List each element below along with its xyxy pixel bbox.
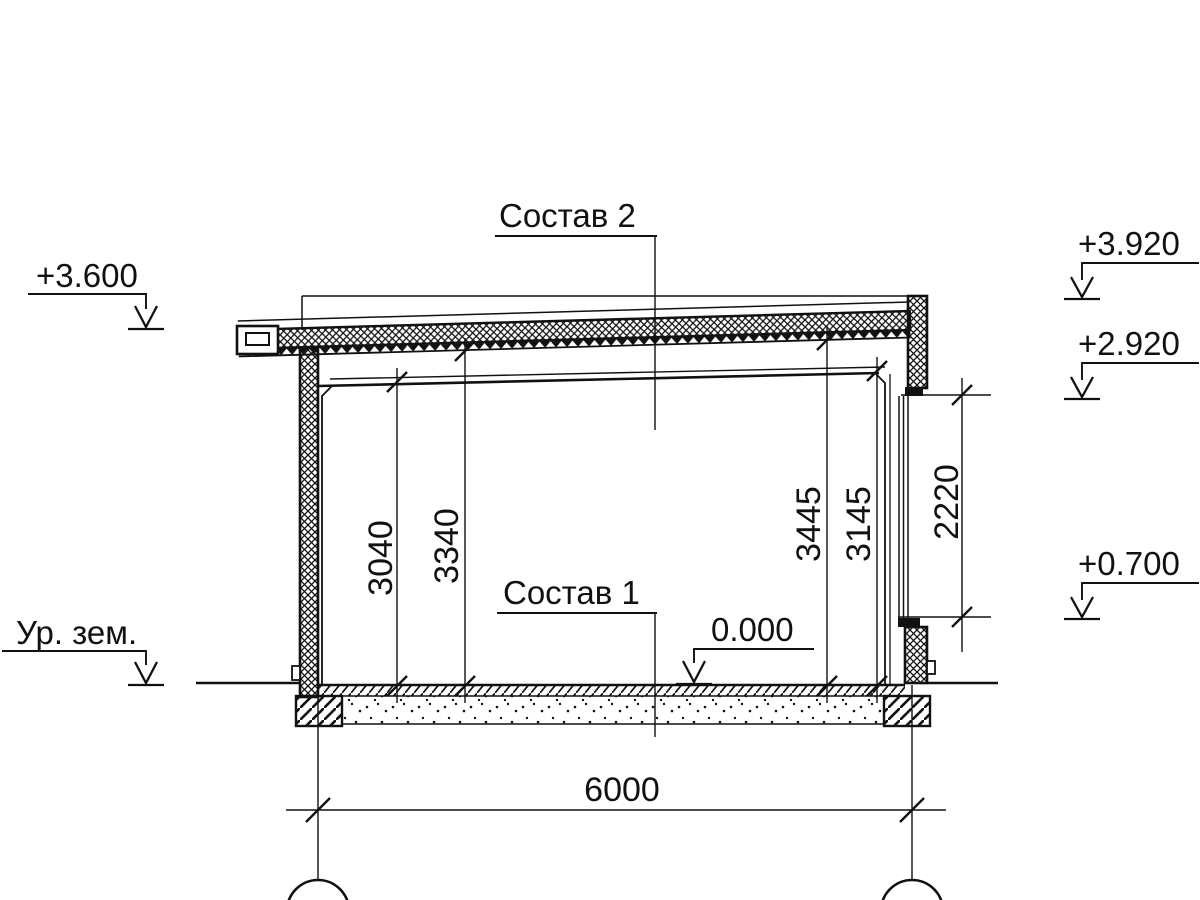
floor-screed-hatch: [318, 685, 905, 696]
ground-level-text: Ур. зем.: [16, 614, 137, 651]
right-wall-base-ledge: [927, 661, 935, 674]
dim-text-3445: 3445: [790, 486, 828, 562]
left-wall: [300, 348, 318, 697]
right-wall-upper: [908, 296, 927, 388]
dim-text-3340: 3340: [428, 508, 466, 584]
elevation-left-roof-text: +3.600: [36, 257, 138, 294]
section-drawing-canvas: 6000 3040 3340 3445 3145 2220 Состав 2: [0, 0, 1200, 900]
window-sill-text: +0.700: [1078, 545, 1180, 582]
eave-gutter: [237, 326, 278, 354]
floor-underlayer-stipple: [342, 696, 884, 724]
floor-slab: [318, 685, 905, 724]
parapet-top-text: +3.920: [1078, 225, 1180, 262]
dim-text-2220: 2220: [928, 464, 966, 540]
floor-assembly-label: Состав 1: [503, 574, 640, 611]
span-dimension-text: 6000: [584, 771, 660, 809]
left-wall-base-ledge: [292, 666, 300, 680]
dim-text-3145: 3145: [840, 486, 878, 562]
dim-text-3040: 3040: [362, 520, 400, 596]
roof-assembly-label: Состав 2: [499, 197, 636, 234]
window-sill: [898, 618, 920, 627]
right-wall-lower: [905, 627, 927, 683]
paper-background: [0, 0, 1200, 900]
left-footing: [296, 696, 342, 726]
floor-zero-text: 0.000: [711, 611, 794, 648]
window-head-text: +2.920: [1078, 325, 1180, 362]
section-drawing: 6000 3040 3340 3445 3145 2220 Состав 2: [0, 0, 1200, 900]
right-footing: [884, 696, 930, 726]
